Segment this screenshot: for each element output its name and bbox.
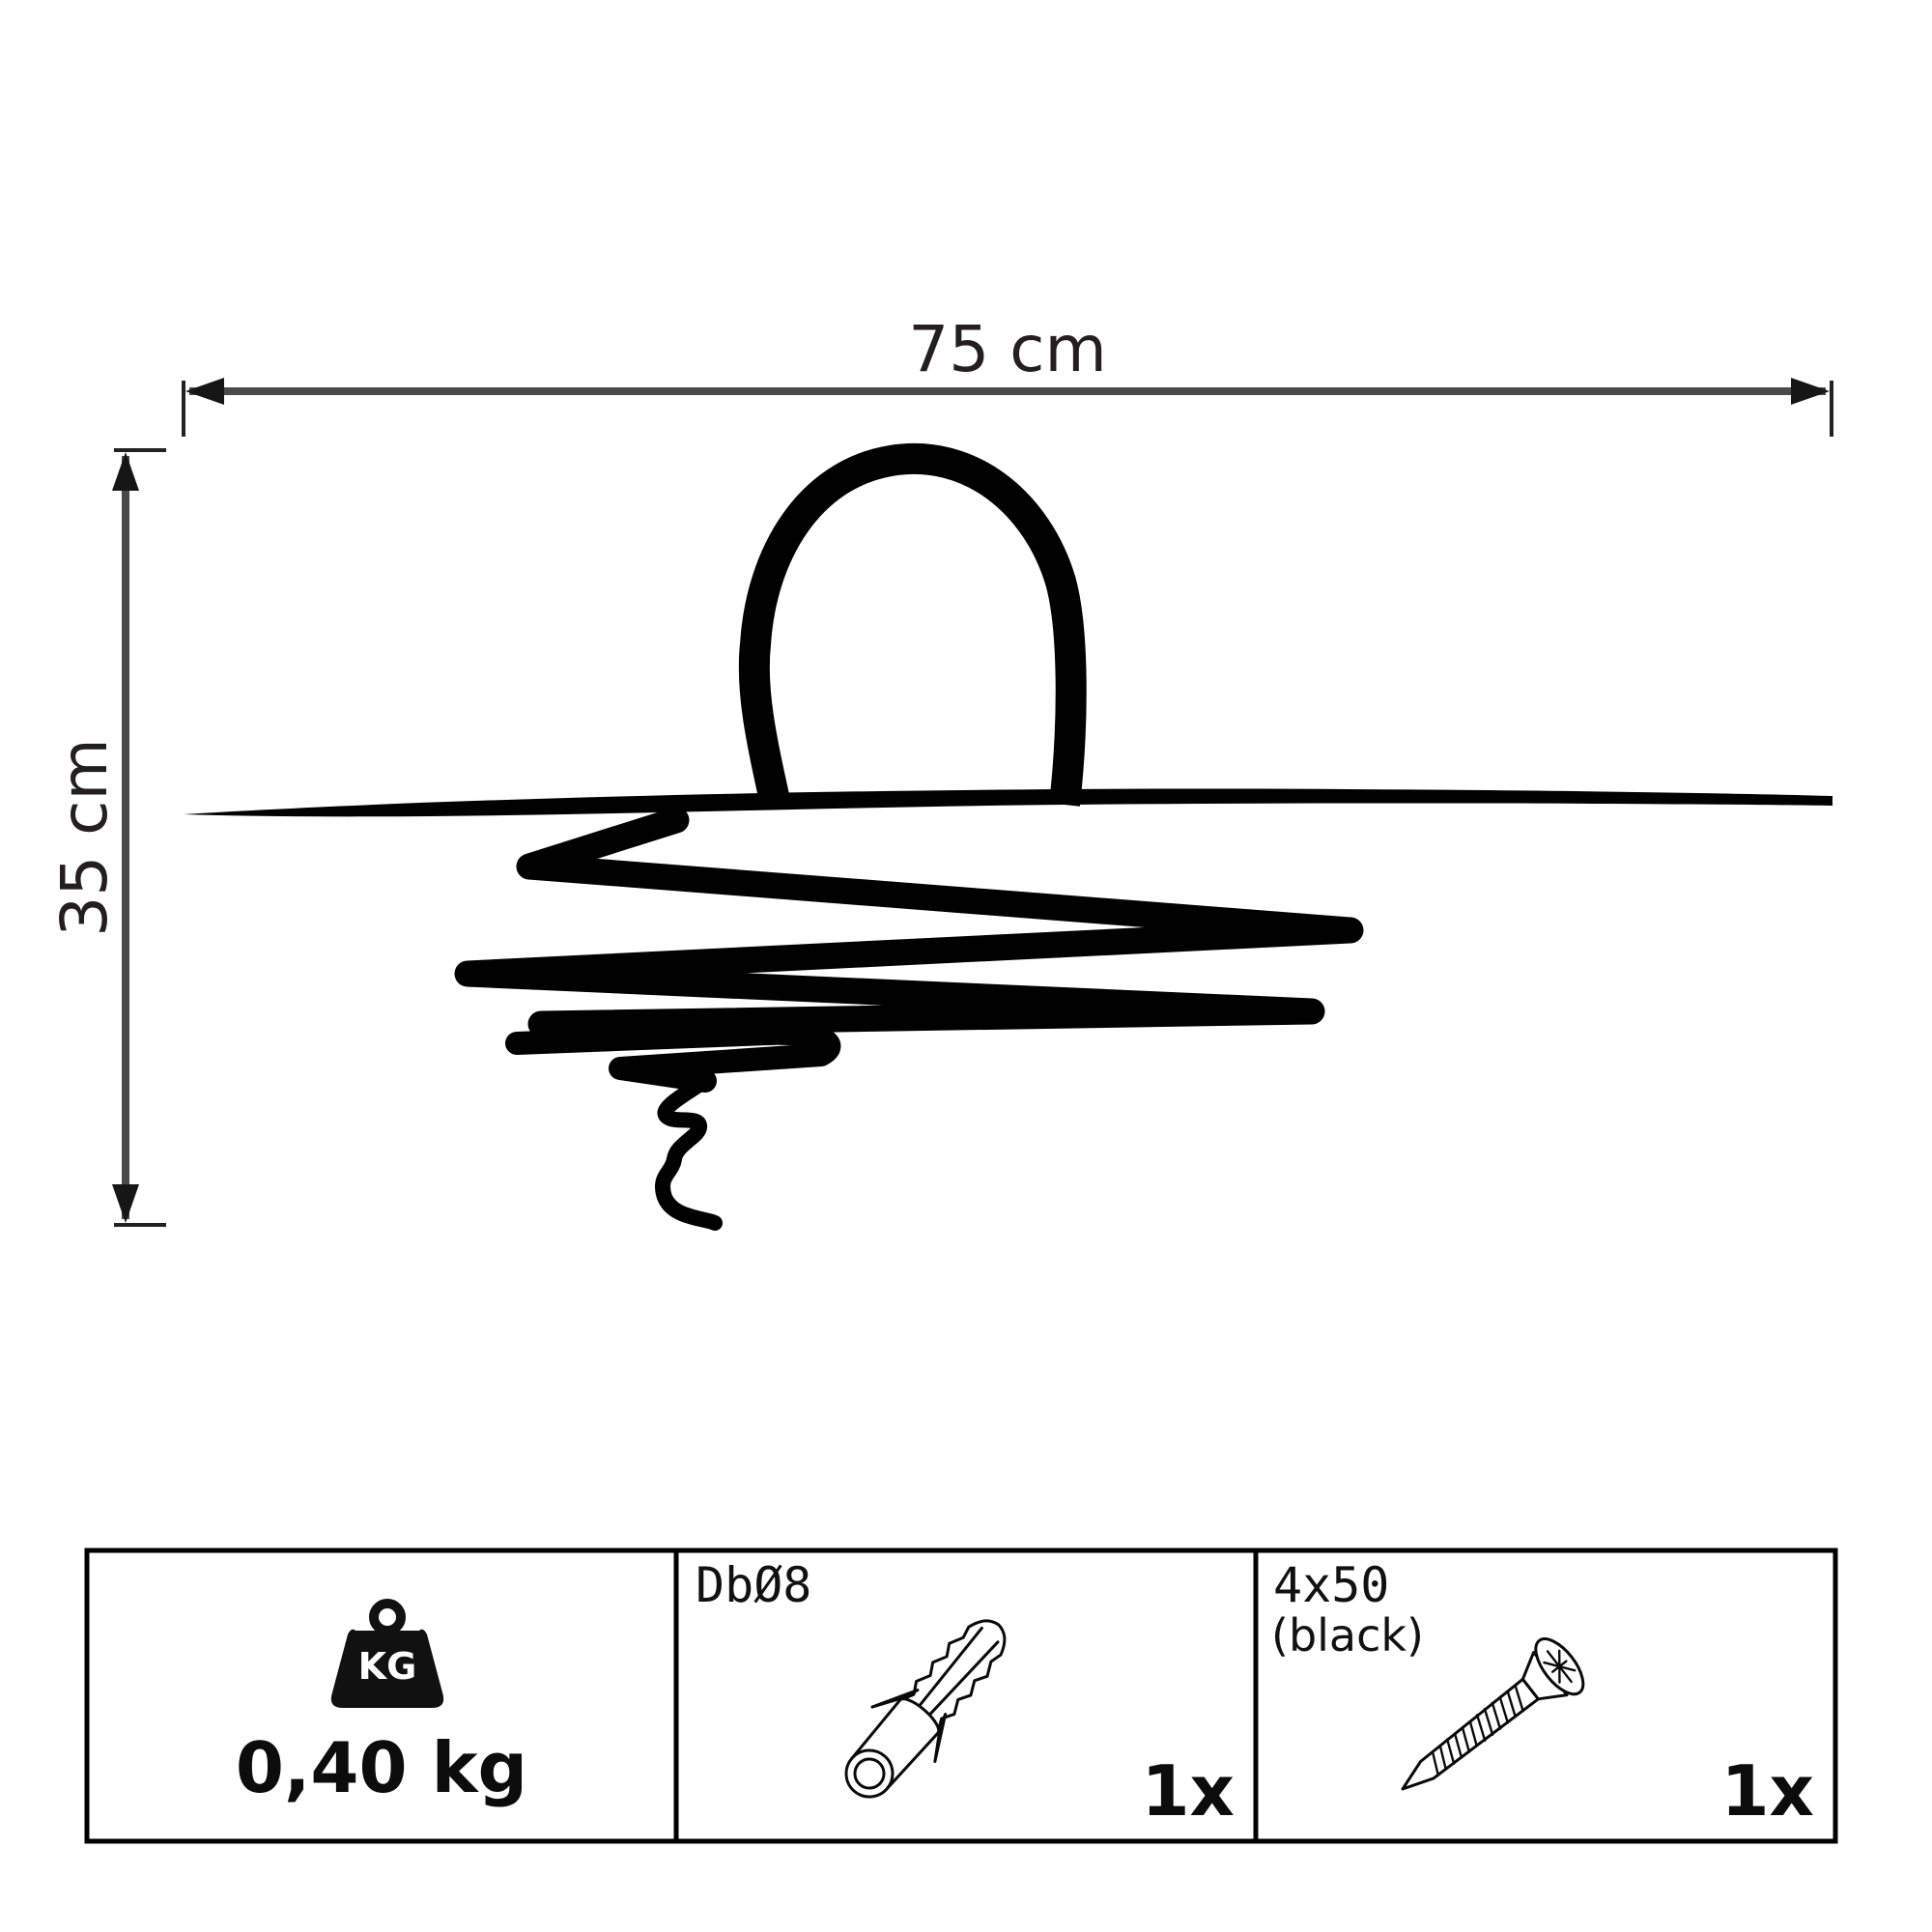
screw-quantity: 1x: [1256, 1756, 1814, 1826]
weight-value: 0,40 kg: [87, 1733, 676, 1803]
arrow-left-icon: [185, 378, 224, 405]
screw-sublabel: (black): [1271, 1613, 1424, 1658]
height-dimension-label: 35 cm: [53, 702, 117, 973]
reflection-zigzag: [468, 820, 1350, 1024]
screw-label: 4x50: [1273, 1561, 1389, 1609]
sunset-artwork: [184, 459, 1833, 1223]
diagram-canvas: [0, 0, 1932, 1932]
dowel-quantity: 1x: [676, 1756, 1235, 1826]
arrow-right-icon: [1791, 378, 1830, 405]
arrow-down-icon: [112, 1184, 139, 1223]
product-dimension-diagram: 75 cm 35 cm KG 0,40 kg DbØ8 1x 4x50 (bla…: [0, 0, 1932, 1932]
reflection-middle-stroke: [517, 1034, 829, 1081]
reflection-tail: [663, 1081, 715, 1223]
width-dimension-label: 75 cm: [887, 318, 1128, 382]
width-dimension: [184, 378, 1832, 437]
horizon-line: [184, 789, 1833, 817]
dowel-label: DbØ8: [696, 1561, 811, 1609]
arrow-up-icon: [112, 452, 139, 491]
kg-icon-letters: KG: [325, 1648, 450, 1685]
